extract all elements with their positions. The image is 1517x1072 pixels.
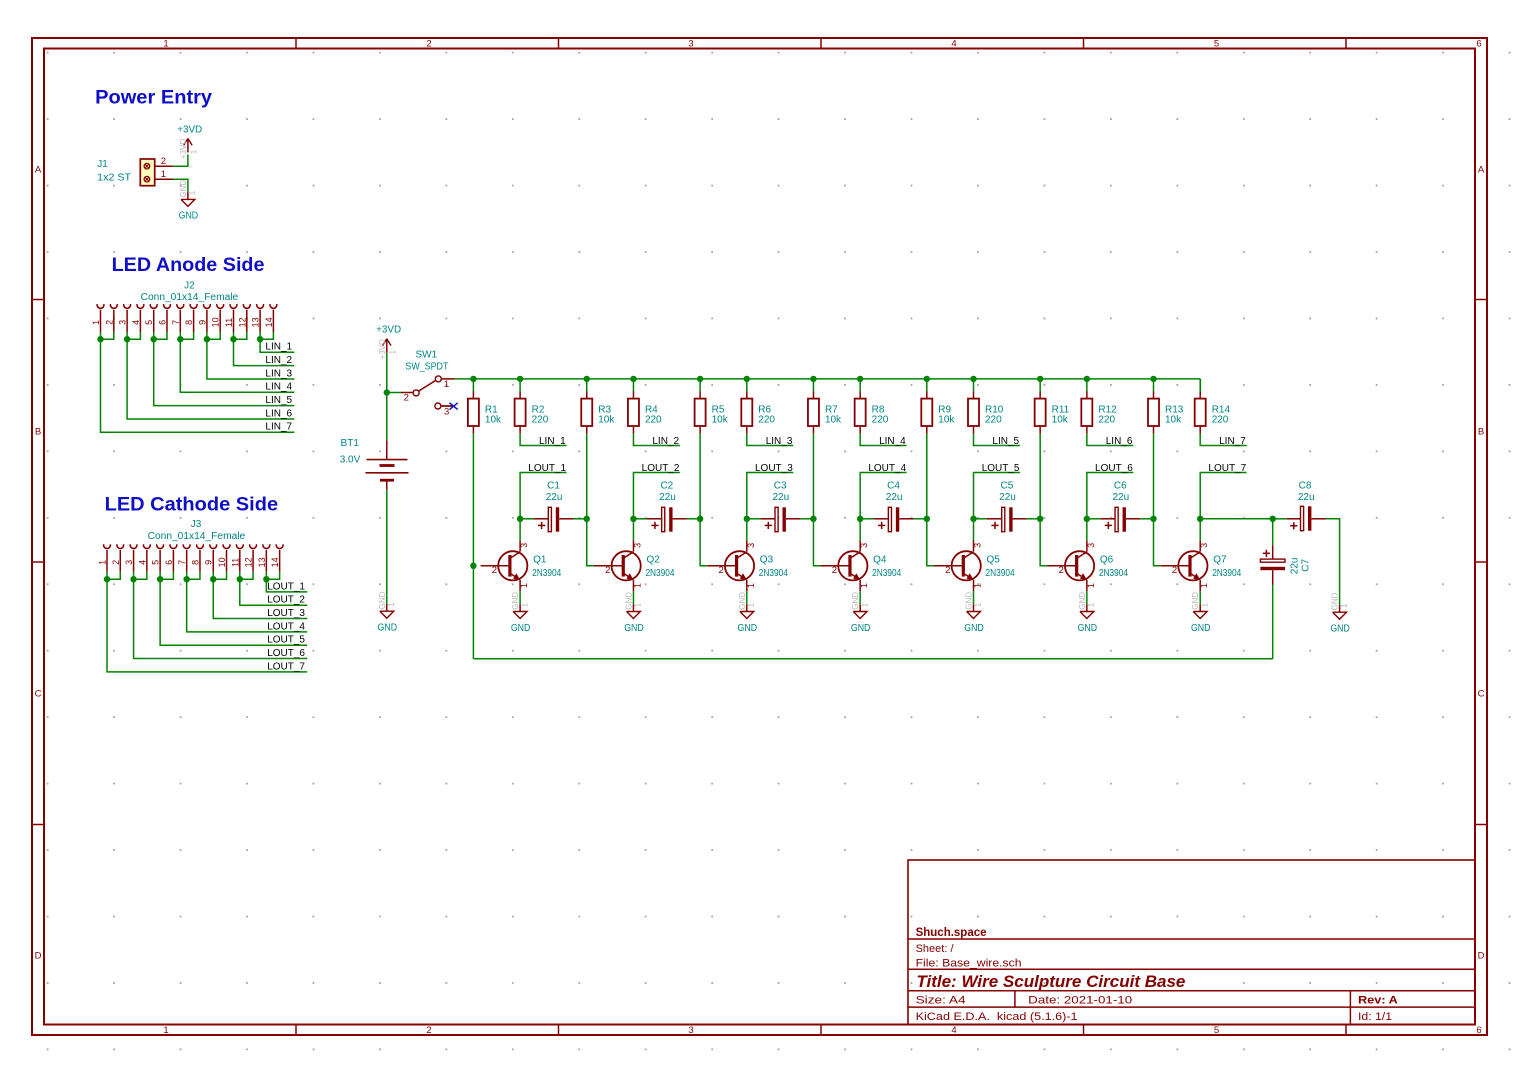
svg-text:10k: 10k <box>598 415 615 426</box>
svg-text:7: 7 <box>177 560 187 565</box>
svg-text:5: 5 <box>1214 39 1219 50</box>
svg-text:B: B <box>35 427 41 438</box>
svg-text:J1: J1 <box>97 159 108 170</box>
svg-text:Q4: Q4 <box>873 555 887 566</box>
svg-text:LED Anode Side: LED Anode Side <box>112 254 265 276</box>
svg-text:22u: 22u <box>659 492 676 503</box>
svg-text:6: 6 <box>1476 1025 1481 1036</box>
svg-text:LOUT_3: LOUT_3 <box>267 608 305 619</box>
svg-text:2N3904: 2N3904 <box>986 568 1015 579</box>
svg-text:1: 1 <box>860 602 869 607</box>
svg-text:C7: C7 <box>1300 558 1311 571</box>
svg-text:SW1: SW1 <box>415 349 437 360</box>
svg-text:2: 2 <box>404 393 409 404</box>
svg-text:1: 1 <box>859 583 869 588</box>
svg-text:C6: C6 <box>1114 480 1127 491</box>
svg-text:D: D <box>1478 951 1485 962</box>
svg-text:220: 220 <box>758 415 775 426</box>
svg-text:LIN_3: LIN_3 <box>766 436 793 447</box>
svg-text:1: 1 <box>388 350 397 355</box>
svg-text:13: 13 <box>251 317 261 327</box>
svg-text:A: A <box>1478 165 1485 176</box>
svg-text:Q7: Q7 <box>1213 555 1227 566</box>
svg-text:1: 1 <box>1087 602 1096 607</box>
svg-text:9: 9 <box>204 560 214 565</box>
svg-text:22u: 22u <box>1298 492 1315 503</box>
svg-text:6: 6 <box>164 560 174 565</box>
svg-text:LIN_7: LIN_7 <box>265 422 292 433</box>
svg-text:GND: GND <box>1330 623 1350 635</box>
svg-text:LOUT_6: LOUT_6 <box>267 648 305 659</box>
svg-text:KiCad E.D.A. kicad (5.1.6)-1: KiCad E.D.A. kicad (5.1.6)-1 <box>916 1011 1078 1023</box>
svg-text:3.0V: 3.0V <box>340 454 361 465</box>
svg-text:B: B <box>1478 427 1484 438</box>
svg-text:GND: GND <box>851 622 871 634</box>
svg-text:LIN_3: LIN_3 <box>265 368 292 379</box>
svg-text:2: 2 <box>492 565 497 576</box>
svg-text:GND: GND <box>511 622 531 634</box>
svg-text:Q3: Q3 <box>760 555 774 566</box>
svg-text:LED Cathode Side: LED Cathode Side <box>105 494 279 516</box>
svg-text:GND: GND <box>378 622 398 634</box>
svg-text:LOUT_3: LOUT_3 <box>755 463 793 474</box>
svg-text:9: 9 <box>197 320 207 325</box>
svg-text:3: 3 <box>688 39 693 50</box>
svg-text:4: 4 <box>951 39 956 50</box>
svg-text:A: A <box>35 165 42 176</box>
svg-text:LOUT_7: LOUT_7 <box>267 661 305 672</box>
svg-text:1: 1 <box>1086 583 1096 588</box>
svg-text:Id: 1/1: Id: 1/1 <box>1358 1011 1392 1023</box>
svg-text:3: 3 <box>746 543 756 548</box>
svg-text:1: 1 <box>973 583 983 588</box>
svg-text:LOUT_7: LOUT_7 <box>1208 463 1246 474</box>
svg-text:GND: GND <box>511 592 520 610</box>
svg-text:1: 1 <box>387 602 396 607</box>
svg-text:5: 5 <box>1214 1025 1219 1036</box>
svg-text:File: Base_wire.sch: File: Base_wire.sch <box>916 958 1022 970</box>
svg-text:3: 3 <box>124 560 134 565</box>
svg-text:1: 1 <box>974 602 983 607</box>
svg-text:C8: C8 <box>1299 480 1312 491</box>
svg-text:14: 14 <box>270 557 280 567</box>
svg-text:J3: J3 <box>191 519 202 530</box>
svg-text:3: 3 <box>444 407 449 418</box>
svg-text:1: 1 <box>520 602 529 607</box>
svg-text:GND: GND <box>1078 622 1098 634</box>
svg-text:C1: C1 <box>547 480 560 491</box>
svg-text:10k: 10k <box>1165 415 1182 426</box>
svg-text:14: 14 <box>264 317 274 327</box>
svg-text:GND: GND <box>738 592 747 610</box>
svg-text:2N3904: 2N3904 <box>1099 568 1128 579</box>
svg-text:2: 2 <box>426 1025 431 1036</box>
svg-text:LOUT_1: LOUT_1 <box>267 581 305 592</box>
svg-text:C: C <box>1478 689 1485 700</box>
svg-text:LIN_7: LIN_7 <box>1219 436 1246 447</box>
svg-text:1: 1 <box>190 149 199 154</box>
svg-text:1: 1 <box>163 39 168 50</box>
svg-text:LIN_4: LIN_4 <box>879 436 906 447</box>
svg-text:2: 2 <box>426 39 431 50</box>
svg-text:6: 6 <box>1476 39 1481 50</box>
svg-text:LOUT_6: LOUT_6 <box>1095 463 1133 474</box>
svg-text:LOUT_5: LOUT_5 <box>982 463 1020 474</box>
svg-text:5: 5 <box>151 560 161 565</box>
svg-text:220: 220 <box>985 415 1002 426</box>
svg-text:GND: GND <box>179 180 188 198</box>
svg-text:1: 1 <box>91 320 101 325</box>
svg-text:C4: C4 <box>887 480 900 491</box>
svg-text:2N3904: 2N3904 <box>645 568 674 579</box>
svg-text:SW_SPDT: SW_SPDT <box>405 361 448 372</box>
svg-text:C2: C2 <box>660 480 673 491</box>
svg-text:LIN_2: LIN_2 <box>265 355 292 366</box>
svg-text:Conn_01x14_Female: Conn_01x14_Female <box>141 292 239 303</box>
svg-text:1: 1 <box>747 602 756 607</box>
svg-text:22u: 22u <box>546 492 563 503</box>
svg-text:2: 2 <box>104 320 114 325</box>
svg-text:GND: GND <box>738 622 758 634</box>
svg-text:LIN_5: LIN_5 <box>265 395 292 406</box>
svg-text:10: 10 <box>217 557 227 567</box>
svg-text:C: C <box>35 689 42 700</box>
svg-text:+3VD: +3VD <box>179 139 188 159</box>
svg-text:10: 10 <box>211 317 221 327</box>
svg-text:Rev: A: Rev: A <box>1358 995 1398 1007</box>
svg-text:2: 2 <box>718 565 723 576</box>
svg-text:1: 1 <box>746 583 756 588</box>
svg-text:22u: 22u <box>1113 492 1130 503</box>
svg-text:+3VD: +3VD <box>177 123 202 135</box>
svg-text:10k: 10k <box>485 415 502 426</box>
svg-text:D: D <box>35 951 42 962</box>
svg-text:3: 3 <box>1199 543 1209 548</box>
svg-text:GND: GND <box>624 592 633 610</box>
svg-text:2: 2 <box>1172 565 1177 576</box>
svg-text:1: 1 <box>188 190 197 195</box>
svg-text:LIN_5: LIN_5 <box>992 436 1019 447</box>
svg-text:1: 1 <box>163 1025 168 1036</box>
svg-text:1x2 ST: 1x2 ST <box>97 173 131 184</box>
svg-text:LOUT_2: LOUT_2 <box>267 595 305 606</box>
svg-text:Q2: Q2 <box>646 555 660 566</box>
svg-text:Title: Wire Sculpture Circuit: Title: Wire Sculpture Circuit Base <box>916 972 1185 991</box>
svg-text:2: 2 <box>161 156 166 167</box>
svg-text:LIN_6: LIN_6 <box>1106 436 1133 447</box>
svg-text:22u: 22u <box>999 492 1016 503</box>
svg-text:Shuch.space: Shuch.space <box>916 925 987 939</box>
svg-text:+3VD: +3VD <box>378 339 387 359</box>
svg-text:8: 8 <box>190 560 200 565</box>
svg-text:LOUT_1: LOUT_1 <box>528 463 566 474</box>
svg-text:GND: GND <box>964 622 984 634</box>
svg-text:1: 1 <box>634 602 643 607</box>
svg-text:2: 2 <box>832 565 837 576</box>
svg-text:GND: GND <box>1191 592 1200 610</box>
svg-text:+3VD: +3VD <box>376 324 401 336</box>
svg-text:220: 220 <box>1098 415 1115 426</box>
svg-text:3: 3 <box>632 543 642 548</box>
svg-text:2N3904: 2N3904 <box>759 568 788 579</box>
svg-text:1: 1 <box>444 379 449 390</box>
svg-text:13: 13 <box>257 557 267 567</box>
svg-text:3: 3 <box>118 320 128 325</box>
svg-text:3: 3 <box>688 1025 693 1036</box>
svg-text:1: 1 <box>161 169 166 180</box>
svg-text:LOUT_2: LOUT_2 <box>642 463 680 474</box>
svg-text:12: 12 <box>244 557 254 567</box>
svg-text:LIN_1: LIN_1 <box>539 436 566 447</box>
svg-text:3: 3 <box>859 543 869 548</box>
svg-text:5: 5 <box>144 320 154 325</box>
svg-text:GND: GND <box>965 592 974 610</box>
svg-text:8: 8 <box>184 320 194 325</box>
svg-text:10k: 10k <box>712 415 729 426</box>
svg-text:Size: A4: Size: A4 <box>916 995 966 1007</box>
svg-text:Date: 2021-01-10: Date: 2021-01-10 <box>1028 995 1132 1007</box>
svg-text:10k: 10k <box>938 415 955 426</box>
svg-text:GND: GND <box>179 210 199 222</box>
svg-text:1: 1 <box>98 560 108 565</box>
svg-text:LOUT_4: LOUT_4 <box>868 463 906 474</box>
svg-text:22u: 22u <box>772 492 789 503</box>
svg-text:Conn_01x14_Female: Conn_01x14_Female <box>148 531 246 542</box>
svg-text:GND: GND <box>1191 622 1211 634</box>
svg-text:Q1: Q1 <box>533 555 547 566</box>
svg-text:220: 220 <box>532 415 549 426</box>
svg-text:2: 2 <box>945 565 950 576</box>
svg-text:3: 3 <box>1086 543 1096 548</box>
svg-text:GND: GND <box>851 592 860 610</box>
svg-text:4: 4 <box>951 1025 956 1036</box>
svg-text:2: 2 <box>111 560 121 565</box>
svg-text:1: 1 <box>1201 602 1210 607</box>
svg-text:12: 12 <box>237 317 247 327</box>
svg-text:1: 1 <box>1340 603 1349 608</box>
svg-text:2: 2 <box>605 565 610 576</box>
svg-text:22u: 22u <box>886 492 903 503</box>
svg-text:2N3904: 2N3904 <box>1212 568 1241 579</box>
svg-text:GND: GND <box>1331 592 1340 610</box>
svg-text:220: 220 <box>1212 415 1229 426</box>
svg-text:22u: 22u <box>1290 558 1301 575</box>
svg-text:11: 11 <box>230 558 240 567</box>
svg-text:C5: C5 <box>1001 480 1014 491</box>
svg-text:GND: GND <box>624 622 644 634</box>
svg-text:Power Entry: Power Entry <box>95 87 212 109</box>
svg-text:2N3904: 2N3904 <box>532 568 561 579</box>
svg-text:1: 1 <box>1199 583 1209 588</box>
svg-text:LIN_6: LIN_6 <box>265 408 292 419</box>
svg-text:7: 7 <box>171 320 181 325</box>
svg-text:3: 3 <box>519 543 529 548</box>
svg-text:Sheet: /: Sheet: / <box>916 943 955 955</box>
svg-text:BT1: BT1 <box>341 438 360 449</box>
svg-text:220: 220 <box>872 415 889 426</box>
svg-text:11: 11 <box>224 318 234 327</box>
svg-text:GND: GND <box>378 591 387 609</box>
svg-text:GND: GND <box>1078 592 1087 610</box>
svg-text:2: 2 <box>1059 565 1064 576</box>
svg-text:LIN_2: LIN_2 <box>652 436 679 447</box>
svg-text:Q6: Q6 <box>1100 555 1114 566</box>
svg-text:Q5: Q5 <box>987 555 1001 566</box>
svg-text:10k: 10k <box>825 415 842 426</box>
svg-text:1: 1 <box>519 583 529 588</box>
svg-text:C3: C3 <box>774 480 787 491</box>
svg-text:4: 4 <box>131 320 141 325</box>
svg-text:LIN_1: LIN_1 <box>265 342 292 353</box>
svg-text:J2: J2 <box>184 281 195 292</box>
svg-text:LIN_4: LIN_4 <box>265 382 292 393</box>
svg-text:3: 3 <box>973 543 983 548</box>
svg-text:LOUT_4: LOUT_4 <box>267 621 305 632</box>
svg-text:1: 1 <box>632 583 642 588</box>
svg-text:220: 220 <box>645 415 662 426</box>
svg-text:LOUT_5: LOUT_5 <box>267 635 305 646</box>
svg-text:2N3904: 2N3904 <box>872 568 901 579</box>
svg-text:4: 4 <box>137 560 147 565</box>
svg-text:6: 6 <box>158 320 168 325</box>
svg-text:10k: 10k <box>1052 415 1069 426</box>
